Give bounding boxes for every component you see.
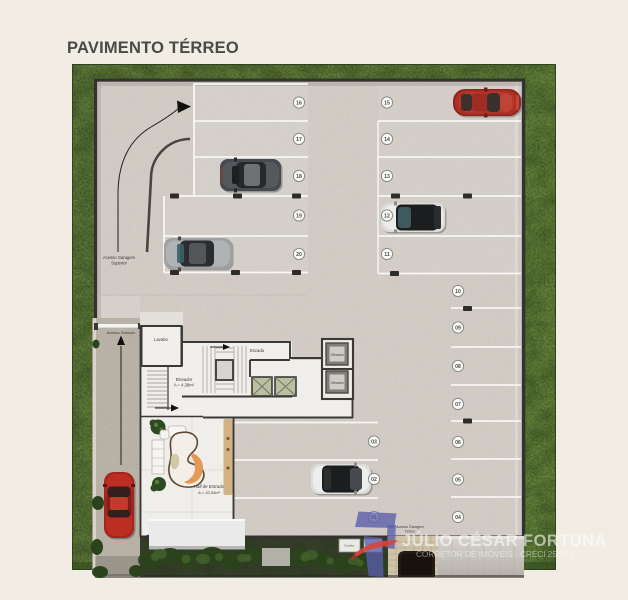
svg-text:Acesso Subsolo: Acesso Subsolo (107, 330, 136, 335)
svg-text:14: 14 (384, 137, 390, 143)
svg-text:11: 11 (384, 252, 390, 258)
svg-text:Elevador: Elevador (331, 381, 345, 385)
svg-text:Acesso Garagem: Acesso Garagem (103, 255, 136, 260)
svg-text:10: 10 (455, 289, 461, 295)
svg-text:CORRETOR DE IMÓVEIS - CRECI 25: CORRETOR DE IMÓVEIS - CRECI 25.903 (416, 549, 573, 559)
svg-text:Elevador: Elevador (331, 353, 345, 357)
svg-text:05: 05 (455, 478, 461, 484)
svg-text:15: 15 (384, 101, 390, 107)
svg-text:Hall de Entrada: Hall de Entrada (194, 484, 225, 489)
svg-text:03: 03 (371, 440, 377, 446)
svg-text:20: 20 (296, 252, 302, 258)
svg-text:19: 19 (296, 214, 302, 220)
svg-text:07: 07 (455, 402, 461, 408)
svg-text:Superior: Superior (111, 261, 127, 266)
svg-text:A = 33,53m²: A = 33,53m² (197, 490, 220, 495)
svg-text:18: 18 (296, 174, 302, 180)
svg-text:Lavabo: Lavabo (154, 337, 168, 342)
svg-text:02: 02 (371, 477, 377, 483)
svg-text:06: 06 (455, 440, 461, 446)
svg-text:Guarita: Guarita (344, 544, 354, 548)
svg-text:Escada: Escada (250, 348, 265, 353)
svg-text:PAVIMENTO TÉRREO: PAVIMENTO TÉRREO (67, 38, 239, 57)
svg-text:12: 12 (384, 214, 390, 220)
svg-text:04: 04 (455, 515, 461, 521)
svg-text:13: 13 (384, 174, 390, 180)
svg-text:Acesso Garagem: Acesso Garagem (396, 525, 424, 529)
svg-text:A = 4,38m²: A = 4,38m² (174, 383, 195, 388)
svg-text:16: 16 (296, 101, 302, 107)
svg-text:08: 08 (455, 364, 461, 370)
svg-text:JÚLIO CÉSAR FORTUNA: JÚLIO CÉSAR FORTUNA (402, 531, 607, 550)
svg-text:09: 09 (455, 326, 461, 332)
svg-text:Elevador: Elevador (176, 377, 193, 382)
svg-text:17: 17 (296, 137, 302, 143)
